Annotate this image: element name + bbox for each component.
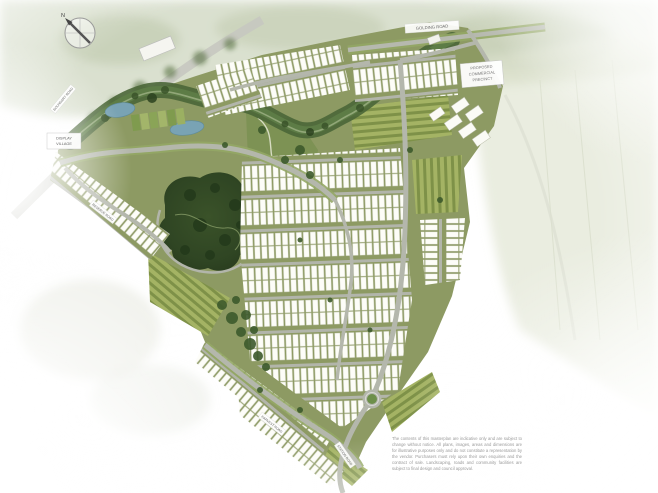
mid-west-road-label: RESERVE ROAD xyxy=(89,200,117,224)
label-overlay: N GOLDING ROAD BOUNDARY ROAD RESERVE ROA… xyxy=(0,0,658,493)
top-road-label: GOLDING ROAD xyxy=(405,21,459,34)
svg-text:BOUNDARY ROAD: BOUNDARY ROAD xyxy=(52,86,74,111)
compass-north-label: N xyxy=(61,13,65,19)
commercial-precinct-label: PROPOSED COMMERCIAL PRECINCT xyxy=(460,60,504,88)
svg-text:VILLAGE: VILLAGE xyxy=(56,142,72,146)
north-compass-icon: N xyxy=(61,13,95,48)
south-road-label-2: STATION ROAD xyxy=(334,442,356,469)
west-road-label: BOUNDARY ROAD xyxy=(50,85,76,114)
svg-text:DISPLAY: DISPLAY xyxy=(56,136,72,140)
svg-text:STATION ROAD: STATION ROAD xyxy=(336,444,354,467)
svg-text:RESERVE ROAD: RESERVE ROAD xyxy=(91,203,115,223)
south-road-label-1: HARVEST ROAD xyxy=(258,412,286,436)
display-village-label: DISPLAY VILLAGE xyxy=(47,133,81,149)
masterplan-canvas: N GOLDING ROAD BOUNDARY ROAD RESERVE ROA… xyxy=(0,0,658,493)
disclaimer-text: The contents of this masterplan are indi… xyxy=(392,436,522,473)
svg-text:HARVEST ROAD: HARVEST ROAD xyxy=(260,415,283,434)
